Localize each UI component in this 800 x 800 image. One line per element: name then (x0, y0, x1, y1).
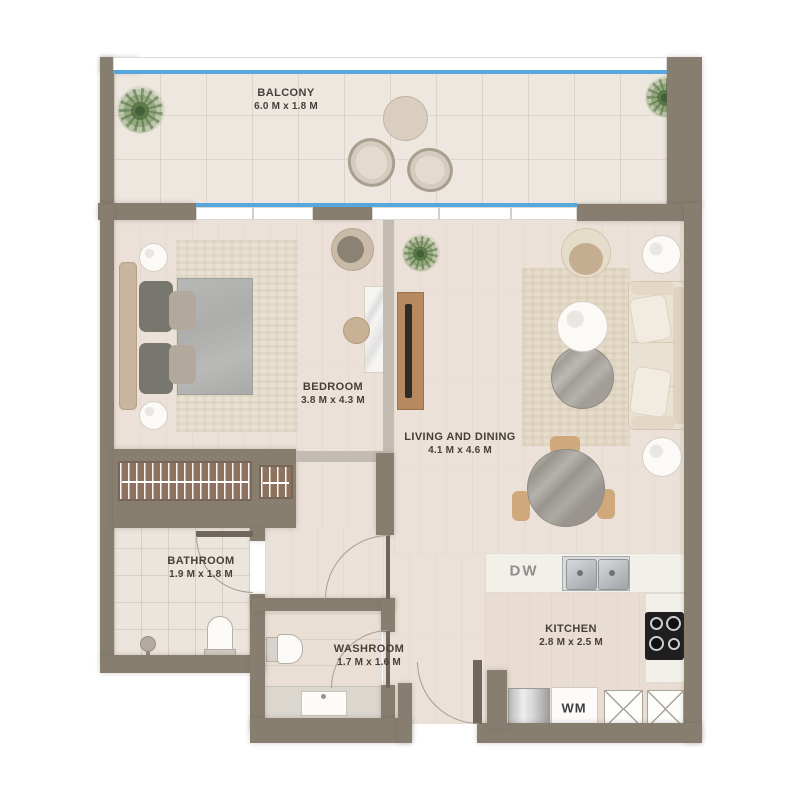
bed-pillow-dark-1 (139, 281, 173, 332)
bed-headboard (119, 262, 137, 410)
bedroom-name: BEDROOM (301, 381, 365, 394)
wall-bathroom-bottom (100, 655, 265, 673)
sink-drain-left (577, 570, 583, 576)
living-sliding-door-frame (372, 207, 577, 220)
nightstand-top (139, 243, 168, 272)
balcony-railing-glass (113, 70, 667, 74)
wall-entry-jamb (398, 683, 412, 743)
wall-left (100, 205, 114, 657)
living-dims: 4.1 M x 4.6 M (404, 444, 516, 457)
bedroom-label: BEDROOM 3.8 M x 4.3 M (301, 381, 365, 407)
bedroom-dims: 3.8 M x 4.3 M (301, 394, 365, 407)
bathroom-toilet-bowl (207, 616, 233, 652)
wall-window-pier (313, 207, 372, 220)
washroom-toilet-bowl (277, 634, 303, 664)
bed-pillow-light-1 (169, 291, 196, 330)
cooktop (645, 612, 684, 660)
balcony-name: BALCONY (254, 87, 318, 100)
wardrobe-short (259, 465, 293, 499)
wall-washroom-right-upper (381, 598, 395, 632)
sofa-pillow-1 (628, 293, 672, 345)
bathroom-dims: 1.9 M x 1.8 M (167, 568, 234, 581)
bedroom-window-frame (196, 207, 313, 220)
balcony-floor (114, 73, 667, 204)
floor-plan: BALCONY 6.0 M x 1.8 M BEDROOM 3.8 M x 4.… (0, 0, 800, 800)
washroom-name: WASHROOM (334, 643, 404, 656)
burner-4 (668, 638, 680, 650)
shower-head (140, 636, 156, 652)
sink-drain-right (609, 570, 615, 576)
wall-right (684, 203, 702, 743)
bedroom-window-mullion (252, 207, 254, 220)
washroom-dims: 1.7 M x 1.6 M (334, 656, 404, 669)
sliding-door-mullion-1 (438, 207, 440, 220)
balcony-railing-frame (113, 57, 667, 71)
living-armchair-seat (569, 243, 603, 275)
bathroom-name: BATHROOM (167, 555, 234, 568)
wall-washroom-top (252, 598, 395, 611)
side-table-bottom (642, 437, 682, 477)
balcony-chair-right-pad (411, 152, 449, 189)
balcony-chair-left-pad (350, 141, 392, 184)
wardrobe-long (118, 461, 252, 501)
wall-washroom-left (250, 598, 265, 730)
bathroom-label: BATHROOM 1.9 M x 1.8 M (167, 555, 234, 581)
coffee-table-white (557, 301, 608, 352)
sliding-door-mullion-2 (510, 207, 512, 220)
dining-table (527, 449, 605, 527)
tv-screen (405, 304, 412, 398)
kitchen-label: KITCHEN 2.8 M x 2.5 M (539, 623, 603, 649)
washroom-label: WASHROOM 1.7 M x 1.6 M (334, 643, 404, 669)
living-label: LIVING AND DINING 4.1 M x 4.6 M (404, 431, 516, 457)
living-name: LIVING AND DINING (404, 431, 516, 444)
washroom-faucet (321, 694, 326, 699)
side-table-top (642, 235, 681, 274)
sofa-armrest-top (631, 282, 675, 295)
wall-kitchen-corner-block (487, 670, 507, 728)
kitchen-dims: 2.8 M x 2.5 M (539, 636, 603, 649)
sofa-pillow-2 (629, 366, 672, 419)
kitchen-sink (562, 556, 630, 591)
bedroom-corridor-floor (296, 462, 384, 536)
balcony-plant-left (117, 86, 165, 134)
wall-bottom-right (477, 723, 702, 743)
bed-pillow-light-2 (169, 345, 196, 384)
bed-pillow-dark-2 (139, 343, 173, 394)
fridge (508, 688, 550, 728)
wall-balcony-left (100, 57, 114, 207)
sofa-armrest-bottom (631, 416, 675, 429)
sofa (628, 281, 687, 430)
wall-bedroom-threshold (296, 451, 384, 462)
desk-stool (343, 317, 370, 344)
bedroom-chair-seat (337, 236, 364, 263)
burner-1 (650, 617, 663, 630)
living-plant (402, 234, 440, 272)
balcony-dims: 6.0 M x 1.8 M (254, 100, 318, 113)
nightstand-bottom (139, 401, 168, 430)
balcony-label: BALCONY 6.0 M x 1.8 M (254, 87, 318, 113)
balcony-table (383, 96, 428, 141)
wall-washroom-bottom (250, 718, 412, 743)
dishwasher-label: DW (510, 563, 539, 580)
wall-balcony-bottom-right (577, 204, 690, 221)
washer-label: WM (561, 701, 586, 716)
burner-2 (666, 616, 681, 631)
wall-bedroom-living-divider (383, 218, 394, 453)
wall-balcony-right (667, 57, 702, 207)
coffee-table-gray (551, 346, 614, 409)
burner-3 (649, 636, 664, 651)
kitchen-name: KITCHEN (539, 623, 603, 636)
wall-divider-lower (376, 453, 394, 535)
